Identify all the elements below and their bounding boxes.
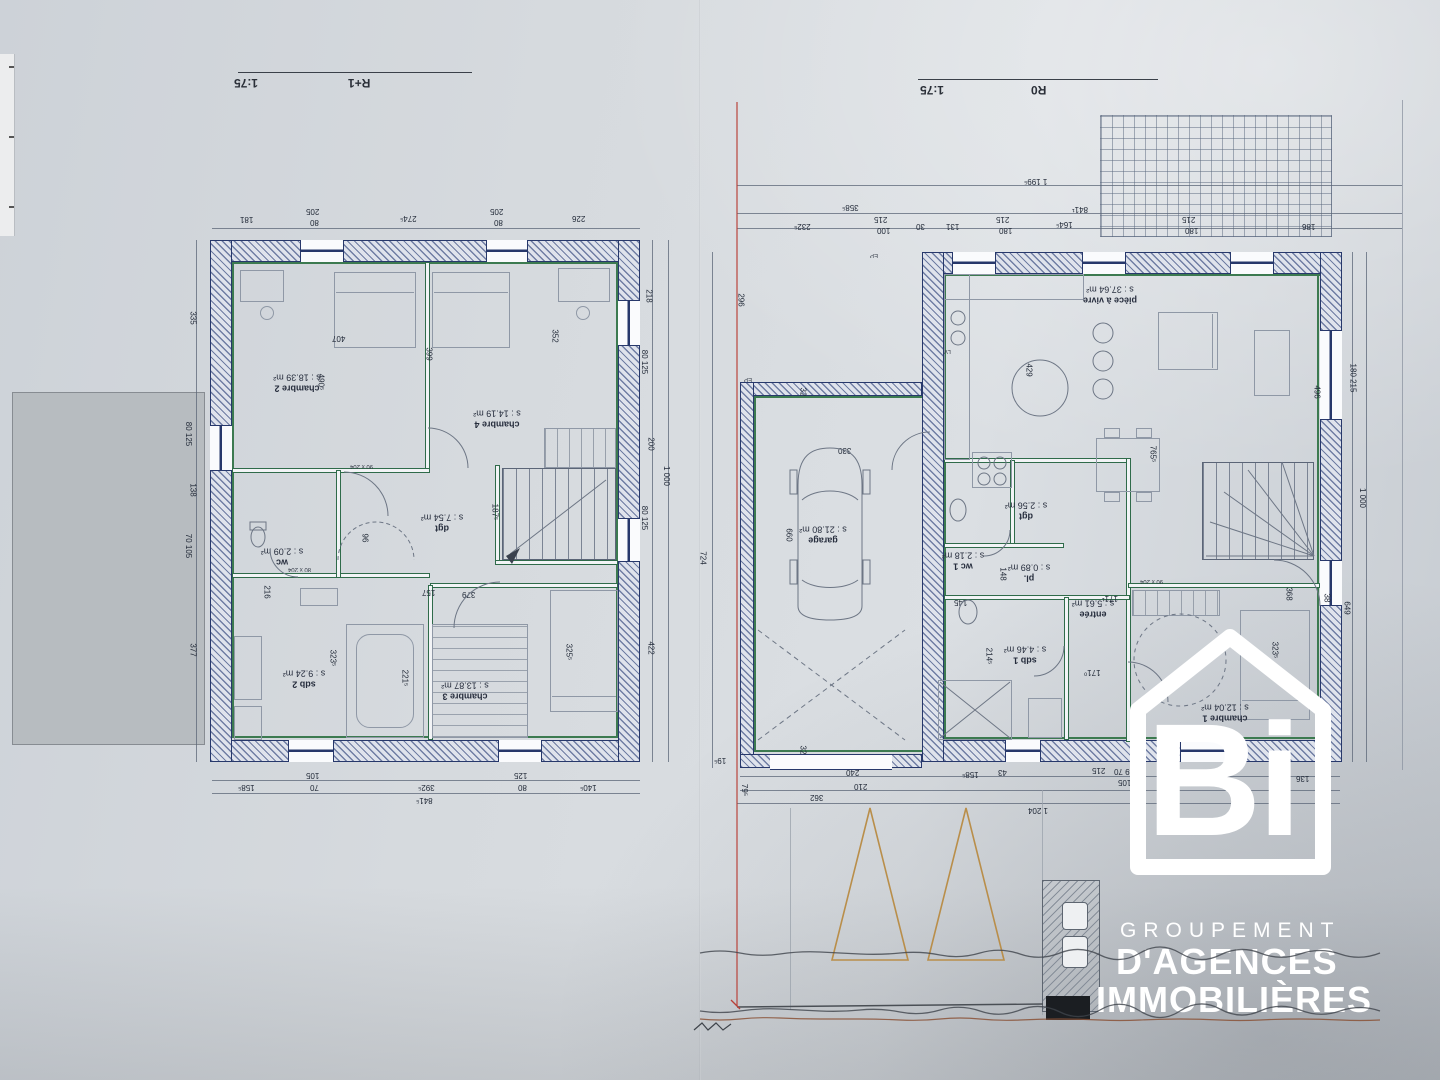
lower-roof-terrace <box>12 392 205 745</box>
r1-bed <box>334 272 416 348</box>
site-boundary-line <box>1402 100 1403 770</box>
r1-bed <box>432 272 510 348</box>
dimension-label: 80 <box>310 218 319 226</box>
r1-bed <box>550 590 618 712</box>
logo-text-dagences: D'AGENCES <box>1116 944 1338 980</box>
dimension-label: 30 <box>916 222 925 230</box>
dimension-label: 96 <box>360 534 368 543</box>
dimension-label: 187⁵ <box>490 504 498 521</box>
dimension-label: 148 <box>999 567 1007 580</box>
ep-label: EP <box>744 376 752 382</box>
dimension-label: 362 <box>810 793 823 801</box>
sheet-edge-tick <box>9 206 14 208</box>
dimension-label: 105 <box>1118 778 1131 786</box>
dimension-label: 70 105 <box>184 534 192 558</box>
dimension-label: 490⁵ <box>316 374 324 391</box>
dimension-label: 138 <box>189 483 197 496</box>
r1-desk <box>558 268 610 302</box>
dimension-label: 105 <box>306 771 319 779</box>
car-rear-window <box>802 580 858 588</box>
car-wheel <box>863 470 870 494</box>
room-label-sdb-1: sdb 1 s : 4.46 m² <box>994 644 1056 666</box>
dimension-label: 32 <box>798 388 806 397</box>
door-size-tag: 90 x 204 <box>350 463 373 469</box>
door-arc <box>428 428 468 468</box>
stool <box>1093 379 1113 399</box>
r1-dresser <box>300 588 338 606</box>
dimension-label: 215 <box>1092 766 1105 774</box>
stool <box>1093 351 1113 371</box>
r0-kitchen-counter <box>944 274 970 460</box>
dimension-label: 80 <box>518 783 527 791</box>
dimension-label: 205 <box>306 207 319 215</box>
dimension-label: 335 <box>189 311 197 324</box>
room-label-placard: pl. s : 0.89 m² <box>1004 562 1054 584</box>
dimension-label: 79⁵ <box>740 784 748 796</box>
door-size-tag: 80 x 204 <box>288 566 311 572</box>
sheet-edge-tick <box>9 66 14 68</box>
dimension-label: 325⁵ <box>564 644 572 661</box>
dimension-label: 80 125 <box>640 506 648 530</box>
dimension-label: 407 <box>332 334 345 342</box>
structure-solid-black <box>1046 996 1090 1020</box>
dimension-label: 841¹ <box>1072 205 1088 213</box>
dimension-label: 215 <box>1182 215 1195 223</box>
dimension-line <box>1352 252 1353 762</box>
r1-window <box>498 740 542 762</box>
dimension-label: 377 <box>189 643 197 656</box>
car-wheel <box>863 560 870 584</box>
driveway-marking-triangle <box>928 808 1004 960</box>
dimension-line <box>668 240 669 762</box>
sheet-title-r0: R0 <box>1031 83 1046 97</box>
dimension-label: 274⁵ <box>400 214 417 222</box>
r0-bay-window <box>1320 330 1342 420</box>
dimension-label: 215 <box>874 215 887 223</box>
dimension-label: 19⁵ <box>714 756 726 764</box>
dimension-label: 392⁵ <box>418 783 435 791</box>
dimension-label: 323⁵ <box>1270 642 1278 659</box>
dimension-label: 765⁵ <box>1148 446 1156 463</box>
dimension-label: 232⁵ <box>794 222 811 230</box>
room-label-dgt: dgt s : 7.54 m² <box>410 512 474 534</box>
site-boundary-bottom-line <box>737 1004 1043 1007</box>
dimension-label: 100 <box>877 226 890 234</box>
r1-window <box>210 425 232 471</box>
dimension-label: 379 <box>462 590 475 598</box>
dimension-label: 158⁵ <box>238 783 255 791</box>
car-windshield <box>802 491 858 500</box>
paper-crease <box>699 0 701 1080</box>
dimension-label: 323⁵ <box>328 650 336 667</box>
r1-window <box>618 300 640 346</box>
dimension-label: 140⁵ <box>580 783 597 791</box>
dimension-label: 214⁵ <box>984 648 992 665</box>
r1-partition <box>495 560 618 565</box>
r0-sofa <box>1158 312 1218 370</box>
dimension-label: 180 215 <box>1348 364 1356 393</box>
dimension-label: 171⁰ <box>1084 668 1101 676</box>
dimension-total-label: 1 000 <box>662 466 670 486</box>
room-label-chambre-4: chambre 4 s : 14.19 m² <box>462 408 532 430</box>
dimension-label: 205 <box>490 207 503 215</box>
dimension-label: 200 <box>647 437 655 450</box>
dimension-label: 422 <box>647 641 655 654</box>
r0-garage-door-opening <box>770 754 892 770</box>
r0-window <box>1082 252 1126 274</box>
r1-desk <box>240 270 284 302</box>
room-label-piece-a-vivre: pièce à vivre s : 37.64 m² <box>1072 284 1148 306</box>
dimension-label: 226 <box>572 214 585 222</box>
dimension-label: 149 70 <box>1114 767 1138 775</box>
r0-sofa-back <box>1212 314 1213 368</box>
r1-window <box>618 518 640 562</box>
dimension-label: 180 <box>999 226 1012 234</box>
dimension-label: 496 <box>1313 385 1321 398</box>
room-label-garage: garage s : 21.80 m² <box>790 524 856 546</box>
dimension-label: 186 <box>1302 222 1315 230</box>
dimension-label: 136 <box>1296 774 1309 782</box>
round-table <box>1012 360 1068 416</box>
r0-garage-wall-left <box>740 382 754 768</box>
dimension-label: 181 <box>240 215 253 223</box>
dimension-label: 240 <box>846 768 859 776</box>
r1-bed-pillow-line <box>336 292 414 293</box>
r0-chair <box>1104 428 1120 438</box>
door-swing-dashed <box>338 522 414 560</box>
r1-chair <box>260 306 274 320</box>
site-boundary-red-corner <box>731 1000 740 1009</box>
dimension-label: 221⁵ <box>400 670 408 687</box>
r0-shower <box>938 680 1012 740</box>
r1-chair <box>576 306 590 320</box>
dimension-label: 145 <box>954 598 967 606</box>
driveway-marking-triangle <box>832 808 908 960</box>
dimension-label: 80 125 <box>184 422 192 446</box>
structure-detail-square <box>1062 902 1088 930</box>
r0-liner <box>754 396 922 398</box>
photo-of-floor-plan-sheets: 1:75 R+1 1:75 R0 chambre 2 <box>0 0 1440 1080</box>
dimension-label: 131 <box>946 222 959 230</box>
dimension-label: 352 <box>551 329 559 342</box>
dimension-label: 368 <box>1285 587 1293 600</box>
dimension-label: 358⁵ <box>842 203 859 211</box>
title-underline-left <box>238 72 472 73</box>
dimension-label: 330 <box>838 446 851 454</box>
dimension-label: 429 <box>1025 363 1033 376</box>
dimension-line <box>712 252 713 768</box>
r1-staircase <box>502 468 616 560</box>
dimension-label: 125 <box>514 771 527 779</box>
dimension-line <box>212 793 640 794</box>
dimension-label: 157 <box>422 588 435 596</box>
dimension-label: 164⁵ <box>1056 220 1073 228</box>
r0-window <box>952 252 996 274</box>
dimension-label: 296 <box>737 293 745 306</box>
r1-partition <box>425 262 430 470</box>
dimension-label: 218 <box>645 289 653 302</box>
r0-liner <box>754 750 922 752</box>
r1-wall-bottom <box>210 740 640 762</box>
dimension-label: 80 125 <box>640 350 648 374</box>
dimension-label: 32 <box>798 746 806 755</box>
r0-chair <box>1104 492 1120 502</box>
dimension-label: 210 <box>854 782 867 790</box>
dimension-label: 180 <box>1185 226 1198 234</box>
dimension-label: 158⁵ <box>962 770 979 778</box>
scale-label-left: 1:75 <box>234 76 258 90</box>
room-label-chambre-3: chambre 3 s : 13.87 m² <box>430 680 500 702</box>
r0-garage-wall-top <box>740 382 922 396</box>
dimension-label: 38 <box>1322 594 1330 603</box>
dimension-total-label: 1 204 <box>1028 806 1048 814</box>
dimension-line <box>212 228 640 229</box>
dimension-label: 399 <box>425 347 433 360</box>
room-label-dgt-r0: dgt s : 2.56 m² <box>996 500 1056 522</box>
sheet-edge-tick <box>9 136 14 138</box>
adjacent-sheet-edge <box>0 54 15 236</box>
r1-wardrobe <box>544 428 616 468</box>
dimension-label: 216 <box>263 585 271 598</box>
r0-partition <box>1126 458 1131 742</box>
logo-text-immobilieres: IMMOBILIÈRES <box>1096 982 1372 1018</box>
r1-wall-top <box>210 240 640 262</box>
stool <box>1093 323 1113 343</box>
toilet-tank <box>250 522 266 530</box>
r1-partition <box>232 468 430 473</box>
room-label-wc: wc s : 2.09 m² <box>252 546 312 568</box>
r1-partition <box>430 583 618 588</box>
r0-liner <box>1317 274 1319 738</box>
pergola-trellis <box>1100 115 1332 237</box>
r0-window <box>1005 740 1041 762</box>
appliance-label-lv: LV <box>944 348 951 354</box>
r0-staircase <box>1202 462 1314 560</box>
dimension-label: 649 <box>1343 601 1351 614</box>
r1-bed-pillow-line <box>552 696 616 697</box>
door-arc <box>454 582 500 628</box>
room-label-sdb-2: sdb 2 s : 9.24 m² <box>272 668 336 690</box>
dimension-label: 80 <box>494 218 503 226</box>
r1-vanity <box>234 636 262 700</box>
logo-text-groupement: GROUPEMENT <box>1120 920 1341 941</box>
r0-chair <box>1136 492 1152 502</box>
car-wheel <box>790 560 797 584</box>
dimension-line <box>737 213 1402 214</box>
door-arc <box>344 472 388 516</box>
r0-window <box>1230 252 1274 274</box>
r1-window <box>486 240 528 262</box>
car-wheel <box>790 470 797 494</box>
dimension-label: 171¹ <box>1102 594 1118 602</box>
r0-washbasin <box>1028 698 1062 738</box>
dimension-total-label: 1 199⁵ <box>1024 177 1047 185</box>
r0-coffee-table <box>1254 330 1290 396</box>
dimension-label: 70 <box>310 783 319 791</box>
room-label-wc-1: wc 1 s : 2.18 m² <box>934 550 992 572</box>
scale-label-right: 1:75 <box>920 83 944 97</box>
dimension-total-label: 1 000 <box>1358 488 1366 508</box>
toilet-icon <box>950 499 966 521</box>
dimension-label: 724 <box>699 551 707 564</box>
r0-wall-right <box>1320 252 1342 762</box>
r0-cooktop <box>972 452 1012 488</box>
r0-liner <box>754 396 756 752</box>
ep-label: EP <box>870 252 878 258</box>
dimension-line <box>212 780 640 781</box>
dimension-total-label: 841⁵ <box>416 796 433 804</box>
r1-window <box>300 240 344 262</box>
dimension-label: 660 <box>785 528 793 541</box>
dimension-line <box>737 185 1402 186</box>
structure-detail-square <box>1062 936 1088 968</box>
r1-partition <box>336 470 341 578</box>
r0-wardrobe <box>1132 590 1220 616</box>
r1-liner <box>232 736 618 738</box>
r1-wall-left <box>210 240 232 762</box>
dimension-label: 43 <box>998 768 1007 776</box>
title-underline-right <box>918 79 1158 80</box>
toilet-icon <box>251 527 265 547</box>
r0-chair <box>1136 428 1152 438</box>
dimension-label: 215 <box>996 215 1009 223</box>
logo-monogram: Bi <box>1146 700 1298 860</box>
garage-door-swing <box>758 630 905 740</box>
sheet-title-r1: R+1 <box>348 76 370 90</box>
driveway-edge-line <box>790 808 791 1010</box>
r1-bed-pillow-line <box>434 292 508 293</box>
r1-window <box>288 740 334 762</box>
dimension-line <box>652 240 653 762</box>
garage-door-swing <box>758 630 905 740</box>
door-size-tag: 90 x 204 <box>1140 578 1163 584</box>
r1-partition <box>232 573 430 578</box>
r0-partition <box>944 543 1064 548</box>
r1-vanity <box>234 706 262 740</box>
